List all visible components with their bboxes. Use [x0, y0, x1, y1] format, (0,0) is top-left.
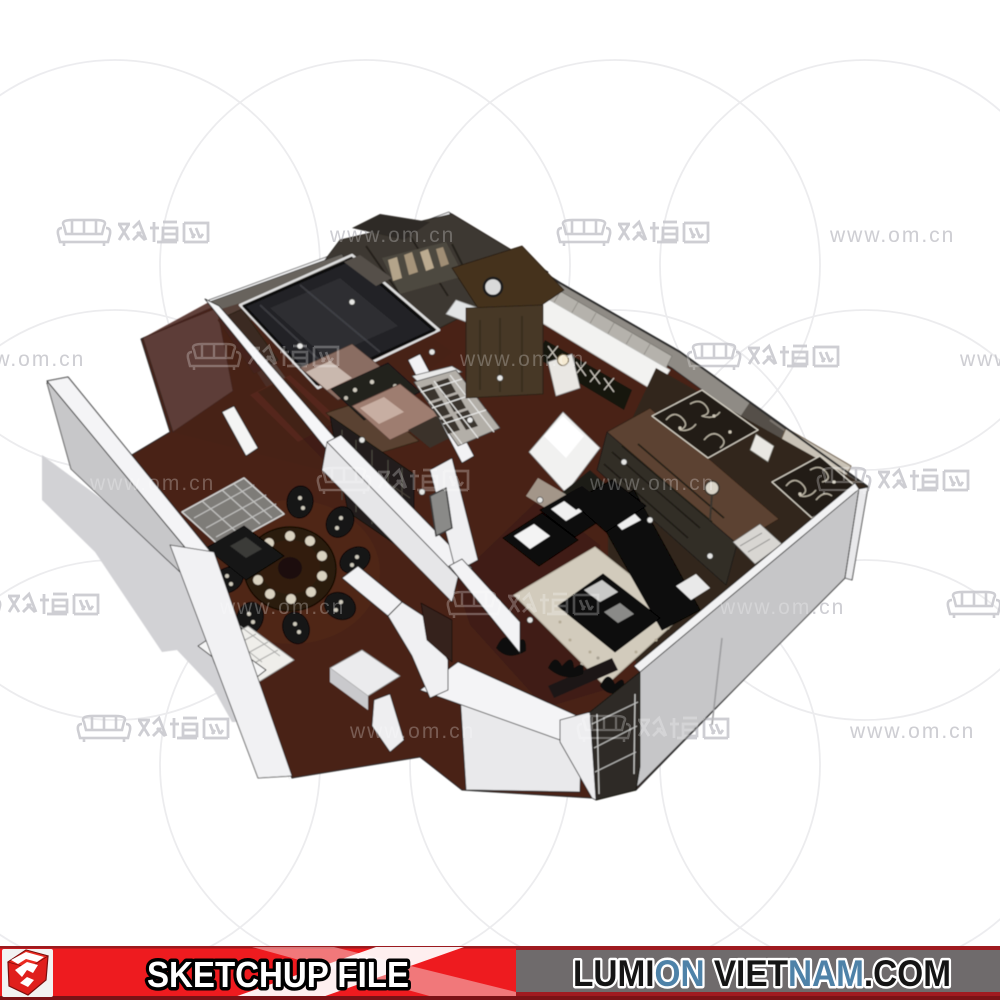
svg-text:SKETCHUP FILE: SKETCHUP FILE — [147, 954, 409, 995]
svg-text:LUMION VIETNAM.COM: LUMION VIETNAM.COM — [573, 953, 951, 994]
